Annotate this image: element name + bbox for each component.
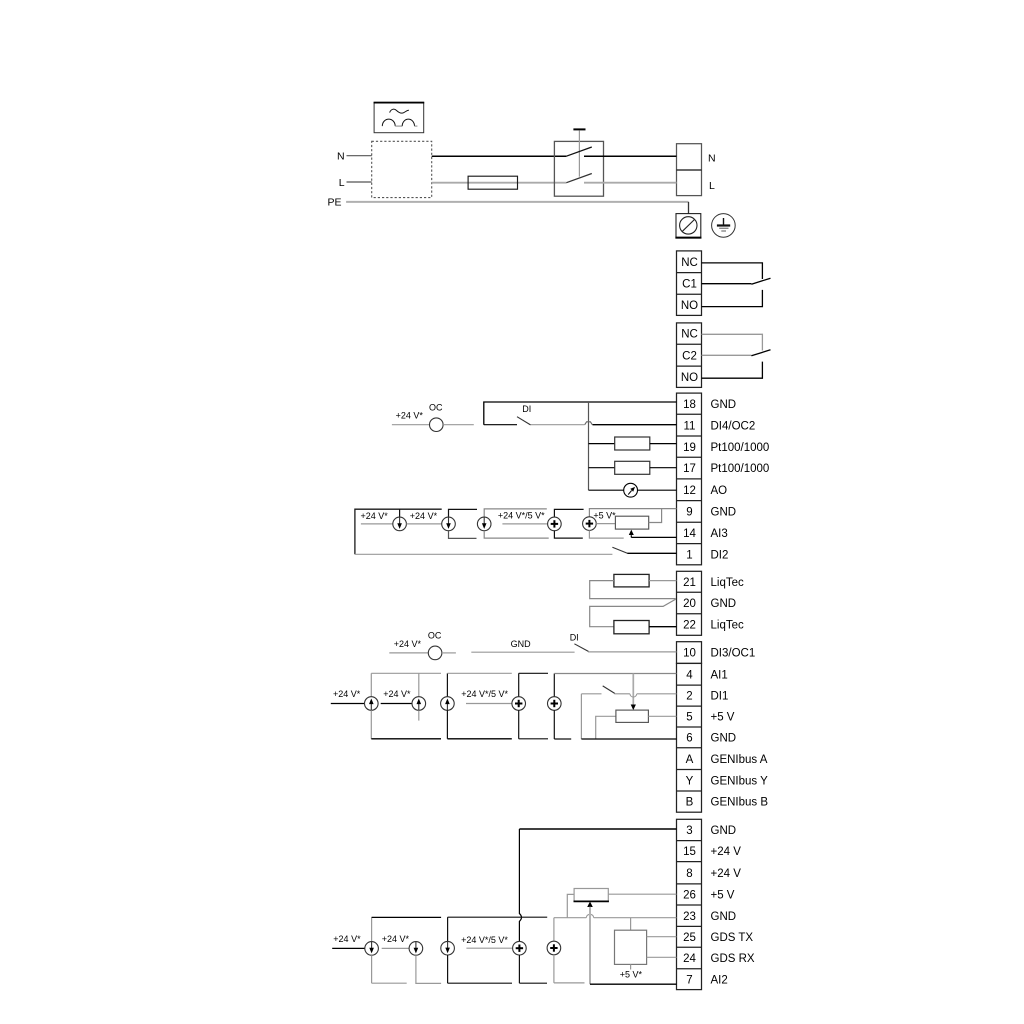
svg-text:GND: GND	[711, 911, 737, 923]
svg-text:DI1: DI1	[711, 691, 729, 703]
svg-text:+5 V*: +5 V*	[620, 970, 643, 980]
svg-text:+5 V*: +5 V*	[593, 511, 616, 521]
svg-text:C2: C2	[682, 350, 697, 362]
svg-text:NO: NO	[681, 372, 698, 384]
svg-text:7: 7	[686, 974, 692, 986]
svg-text:21: 21	[683, 577, 696, 589]
svg-text:11: 11	[684, 420, 696, 432]
svg-text:+5 V: +5 V	[711, 712, 735, 724]
svg-text:+24 V*: +24 V*	[383, 689, 411, 699]
svg-text:GND: GND	[711, 399, 737, 411]
svg-text:GENIbus A: GENIbus A	[711, 754, 768, 766]
svg-text:Y: Y	[686, 775, 694, 787]
svg-text:2: 2	[686, 691, 692, 703]
svg-text:B: B	[686, 797, 694, 809]
svg-text:C1: C1	[682, 279, 697, 291]
svg-text:NC: NC	[681, 257, 698, 269]
svg-text:DI: DI	[522, 404, 531, 414]
svg-text:19: 19	[683, 442, 696, 454]
svg-text:GND: GND	[711, 825, 737, 837]
svg-text:+24 V*/5 V*: +24 V*/5 V*	[461, 935, 508, 945]
svg-text:L: L	[339, 177, 345, 189]
svg-text:N: N	[337, 150, 345, 162]
svg-text:AI2: AI2	[711, 974, 728, 986]
svg-text:GENIbus B: GENIbus B	[711, 797, 769, 809]
svg-text:24: 24	[683, 953, 696, 965]
svg-text:23: 23	[683, 911, 696, 923]
svg-text:15: 15	[683, 846, 696, 858]
svg-text:9: 9	[686, 507, 692, 519]
svg-text:GND: GND	[711, 507, 737, 519]
svg-text:5: 5	[686, 712, 692, 724]
svg-text:GDS RX: GDS RX	[711, 953, 755, 965]
svg-text:+24 V*: +24 V*	[410, 511, 438, 521]
svg-text:1: 1	[686, 549, 692, 561]
svg-text:8: 8	[686, 868, 692, 880]
svg-text:20: 20	[683, 598, 696, 610]
svg-text:10: 10	[683, 648, 696, 660]
svg-text:3: 3	[686, 825, 692, 837]
svg-text:6: 6	[686, 733, 692, 745]
svg-text:OC: OC	[428, 631, 442, 641]
svg-text:A: A	[686, 754, 694, 766]
svg-text:DI: DI	[570, 632, 579, 642]
svg-text:NO: NO	[681, 300, 698, 312]
svg-text:DI2: DI2	[711, 549, 729, 561]
svg-text:12: 12	[683, 485, 696, 497]
svg-text:25: 25	[683, 932, 696, 944]
svg-text:Pt100/1000: Pt100/1000	[711, 442, 770, 454]
svg-text:GDS TX: GDS TX	[711, 932, 754, 944]
svg-text:22: 22	[683, 620, 696, 632]
svg-text:+24 V: +24 V	[711, 868, 742, 880]
svg-text:GENIbus Y: GENIbus Y	[711, 775, 769, 787]
svg-text:DI4/OC2: DI4/OC2	[711, 420, 756, 432]
svg-text:GND: GND	[711, 733, 737, 745]
svg-text:GND: GND	[511, 639, 531, 649]
svg-text:14: 14	[683, 528, 696, 540]
svg-text:+24 V*: +24 V*	[333, 689, 361, 699]
svg-text:LiqTec: LiqTec	[711, 577, 744, 589]
svg-text:AI3: AI3	[711, 528, 728, 540]
svg-text:+24 V*/5 V*: +24 V*/5 V*	[498, 510, 545, 520]
svg-text:26: 26	[683, 890, 696, 902]
svg-text:18: 18	[683, 399, 696, 411]
svg-text:GND: GND	[711, 598, 737, 610]
svg-text:Pt100/1000: Pt100/1000	[711, 463, 770, 475]
svg-text:LiqTec: LiqTec	[711, 620, 744, 632]
svg-text:N: N	[708, 152, 716, 164]
svg-text:+24 V*: +24 V*	[394, 639, 422, 649]
svg-text:NC: NC	[681, 329, 698, 341]
svg-text:4: 4	[686, 669, 693, 681]
svg-text:+24 V*: +24 V*	[361, 511, 389, 521]
svg-text:+24 V*: +24 V*	[333, 934, 361, 944]
svg-text:+24 V*/5 V*: +24 V*/5 V*	[461, 689, 508, 699]
svg-text:L: L	[709, 180, 715, 192]
svg-text:+24 V*: +24 V*	[382, 934, 410, 944]
svg-text:PE: PE	[328, 196, 342, 208]
svg-text:AO: AO	[711, 485, 728, 497]
svg-text:+24 V: +24 V	[711, 846, 742, 858]
svg-text:OC: OC	[429, 403, 443, 413]
svg-text:+24 V*: +24 V*	[396, 410, 424, 420]
svg-text:+5 V: +5 V	[711, 890, 735, 902]
svg-text:17: 17	[683, 463, 696, 475]
svg-text:AI1: AI1	[711, 669, 728, 681]
svg-text:DI3/OC1: DI3/OC1	[711, 648, 756, 660]
